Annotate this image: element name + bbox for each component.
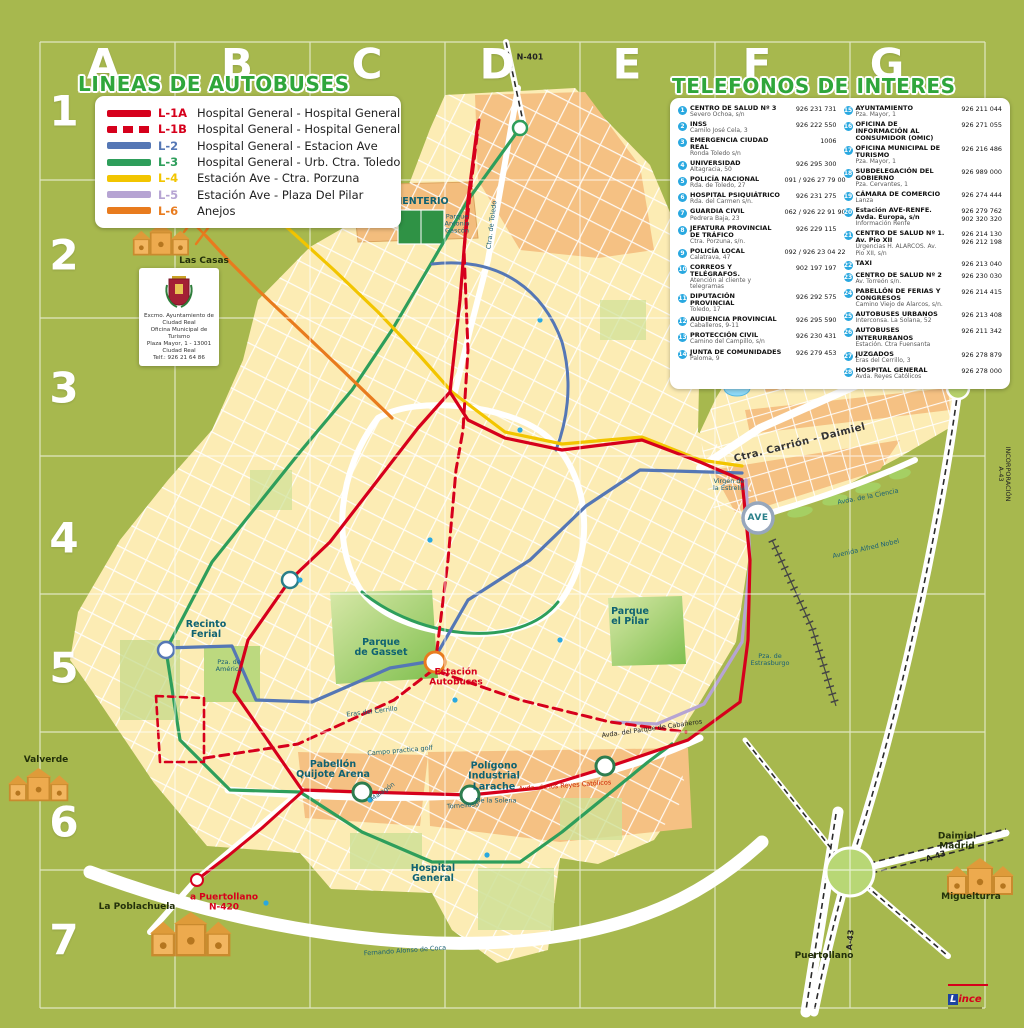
entry-name: EMERGENCIA CIUDAD REAL	[690, 137, 782, 151]
entry-address: Altagracia, 50	[690, 167, 782, 173]
entry-phone: 926 229 115	[785, 225, 837, 233]
entry-phone: 926 274 444	[950, 191, 1002, 199]
legend-title: LINEAS DE AUTOBUSES	[78, 72, 350, 96]
entry-phone: 926 211 342	[950, 327, 1002, 335]
entry-phones: 926 295 590	[785, 316, 837, 324]
directory-entry-23: 23CENTRO DE SALUD Nº 2Av. Torreón s/n.92…	[844, 272, 1003, 285]
entry-phone: 926 222 550	[785, 121, 837, 129]
directory-entry-11: 11DIPUTACIÓN PROVINCIALToledo, 17926 292…	[678, 293, 837, 314]
legend-line-L-4: L-4Estación Ave - Ctra. Porzuna	[107, 170, 391, 186]
entry-number-badge: 5	[678, 177, 687, 186]
entry-phone: 926 278 000	[950, 367, 1002, 375]
entry-text: AUTOBUSES URBANOSInterconsa. La Solana, …	[856, 311, 948, 324]
entry-number-badge: 23	[844, 273, 853, 282]
infobox-line: Plaza Mayor, 1 - 13001 Ciudad Real	[142, 341, 216, 355]
entry-name: CORREOS Y TELÉGRAFOS.	[690, 264, 782, 278]
entry-name: PABELLÓN DE FERIAS Y CONGRESOS	[856, 288, 948, 302]
entry-phones: 926 229 115	[785, 225, 837, 233]
entry-phones: 926 214 130926 212 198	[950, 230, 1002, 246]
entry-number-badge: 25	[844, 312, 853, 321]
entry-address: Severo Ochoa, s/n	[690, 112, 782, 118]
entry-number-badge: 9	[678, 249, 687, 258]
legend-line-L-1B: L-1BHospital General - Hospital General	[107, 121, 391, 137]
line-id: L-2	[158, 139, 190, 153]
entry-text: SUBDELEGACIÓN DEL GOBIERNOPza. Cervantes…	[856, 168, 948, 189]
entry-number-badge: 4	[678, 161, 687, 170]
roundabout-n	[513, 121, 527, 135]
entry-phone: 926 216 486	[950, 145, 1002, 153]
line-id: L-1B	[158, 122, 190, 136]
grid-letter-C: C	[352, 40, 383, 89]
entry-number-badge: 6	[678, 193, 687, 202]
entry-phones: 1006	[785, 137, 837, 145]
line-label: Hospital General - Hospital General	[197, 122, 400, 136]
entry-phones: 926 211 342	[950, 327, 1002, 335]
entry-text: CENTRO DE SALUD Nº 1. Av. Pio XIIUrgenci…	[856, 230, 948, 257]
entry-phone: 926 231 731	[785, 105, 837, 113]
entry-phones: 926 278 879	[950, 351, 1002, 359]
entry-number-badge: 10	[678, 265, 687, 274]
entry-phone: 926 213 040	[950, 260, 1002, 268]
entry-text: POLICÍA LOCALCalatrava, 47	[690, 248, 782, 261]
entry-name: OFICINA DE INFORMACIÓN AL CONSUMIDOR (OM…	[856, 121, 948, 142]
entry-text: CÁMARA DE COMERCIOLanza	[856, 191, 948, 204]
entry-address: Interconsa. La Solana, 52	[856, 318, 948, 324]
entry-text: INSSCamilo José Cela, 3	[690, 121, 782, 134]
directory-entry-13: 13PROTECCIÓN CIVILCamino del Campillo, s…	[678, 332, 837, 345]
entry-text: AUDIENCIA PROVINCIALCaballeros, 9-11	[690, 316, 782, 329]
tourism-office-infobox: Excmo. Ayuntamiento de Ciudad Real Ofici…	[139, 268, 219, 366]
entry-phone: 926 292 575	[785, 293, 837, 301]
line-swatch-L-2	[107, 142, 151, 149]
entry-phones: 926 295 300	[785, 160, 837, 168]
entry-text: POLICÍA NACIONALRda. de Toledo, 27	[690, 176, 782, 189]
infobox-line: Telf.: 926 21 64 86	[142, 355, 216, 362]
entry-name: TAXI	[856, 260, 948, 267]
grid-number-2: 2	[49, 231, 78, 280]
grid-number-4: 4	[49, 514, 78, 563]
line-label: Anejos	[197, 204, 235, 218]
entry-number-badge: 22	[844, 261, 853, 270]
grid-number-6: 6	[49, 798, 78, 847]
line-id: L-6	[158, 204, 190, 218]
directory-entry-14: 14JUNTA DE COMUNIDADESPaloma, 9926 279 4…	[678, 349, 837, 362]
entry-phone: 926 211 044	[950, 105, 1002, 113]
grid-letter-E: E	[613, 40, 642, 89]
line-label: Hospital General - Hospital General	[197, 106, 400, 120]
entry-number-badge: 28	[844, 368, 853, 377]
logo-subrule	[948, 1007, 982, 1009]
entry-phone: 926 214 130	[950, 230, 1002, 238]
entry-number-badge: 21	[844, 231, 853, 240]
legend-line-L-1A: L-1AHospital General - Hospital General	[107, 105, 391, 121]
directory-entry-3: 3EMERGENCIA CIUDAD REALRonda Toledo s/n1…	[678, 137, 837, 158]
directory-entry-28: 28HOSPITAL GENERALAvda. Reyes Católicos9…	[844, 367, 1003, 380]
entry-address: Rda. de Toledo, 27	[690, 183, 782, 189]
entry-number-badge: 3	[678, 138, 687, 147]
entry-phones: 926 278 000	[950, 367, 1002, 375]
directory-entry-25: 25AUTOBUSES URBANOSInterconsa. La Solana…	[844, 311, 1003, 324]
directory-entry-12: 12AUDIENCIA PROVINCIALCaballeros, 9-1192…	[678, 316, 837, 329]
directory-entry-19: 19CÁMARA DE COMERCIOLanza926 274 444	[844, 191, 1003, 204]
entry-number-badge: 20	[844, 208, 853, 217]
entry-address: Atención al cliente y telegramas	[690, 278, 782, 291]
entry-phone: 926 213 408	[950, 311, 1002, 319]
city-crest	[164, 273, 194, 311]
entry-phones: 926 279 453	[785, 349, 837, 357]
entry-address: Eras del Cerrillo, 3	[856, 358, 948, 364]
green-patch	[560, 798, 622, 840]
entry-number-badge: 27	[844, 352, 853, 361]
entry-number-badge: 16	[844, 122, 853, 131]
logo-letter: L	[948, 994, 958, 1005]
entry-address: Pedrera Baja, 23	[690, 216, 782, 222]
entry-text: EMERGENCIA CIUDAD REALRonda Toledo s/n	[690, 137, 782, 158]
entry-phone-2: 926 212 198	[950, 238, 1002, 246]
roundabout-w	[282, 572, 298, 588]
entry-text: TAXI	[856, 260, 948, 267]
entry-address: Caballeros, 9-11	[690, 323, 782, 329]
entry-text: UNIVERSIDADAltagracia, 50	[690, 160, 782, 173]
entry-number-badge: 19	[844, 192, 853, 201]
grid-letter-D: D	[480, 40, 515, 89]
line-label: Hospital General - Estacion Ave	[197, 139, 378, 153]
entry-address: Pza. Mayor, 1	[856, 112, 948, 118]
entry-address: Estación. Ctra Fuensanta	[856, 342, 948, 348]
directory-entry-9: 9POLICÍA LOCALCalatrava, 47092 / 926 23 …	[678, 248, 837, 261]
entry-phones: 926 230 030	[950, 272, 1002, 280]
line-swatch-L-1B	[107, 126, 151, 133]
legend-line-L-6: L-6Anejos	[107, 203, 391, 219]
entry-text: JUZGADOSEras del Cerrillo, 3	[856, 351, 948, 364]
entry-address: Avda. Reyes Católicos	[856, 374, 948, 380]
entry-address: Camino Viejo de Alarcos, s/n.	[856, 302, 948, 308]
entry-text: CORREOS Y TELÉGRAFOS.Atención al cliente…	[690, 264, 782, 291]
entry-name: JEFATURA PROVINCIAL DE TRÁFICO	[690, 225, 782, 239]
line-swatch-L-6	[107, 207, 151, 214]
entry-address: Pza. Mayor, 1	[856, 159, 948, 165]
entry-number-badge: 1	[678, 106, 687, 115]
entry-phones: 926 279 762902 320 320	[950, 207, 1002, 223]
line-label: Estación Ave - Ctra. Porzuna	[197, 171, 359, 185]
entry-phones: 926 274 444	[950, 191, 1002, 199]
entry-phone-2: 902 320 320	[950, 215, 1002, 223]
entry-phones: 902 197 197	[785, 264, 837, 272]
entry-name: DIPUTACIÓN PROVINCIAL	[690, 293, 782, 307]
entry-text: OFICINA DE INFORMACIÓN AL CONSUMIDOR (OM…	[856, 121, 948, 142]
directory-entry-4: 4UNIVERSIDADAltagracia, 50926 295 300	[678, 160, 837, 173]
entry-text: Estación AVE-RENFE. Avda. Europa, s/nInf…	[856, 207, 948, 228]
entry-name: AUTOBUSES INTERURBANOS	[856, 327, 948, 341]
legend-line-L-3: L-3Hospital General - Urb. Ctra. Toledo	[107, 154, 391, 170]
entry-phones: 092 / 926 23 04 22	[785, 248, 837, 256]
entry-text: CENTRO DE SALUD Nº 3Severo Ochoa, s/n	[690, 105, 782, 118]
lince-logo: Lince	[948, 984, 1014, 1009]
entry-text: JEFATURA PROVINCIAL DE TRÁFICOCtra. Porz…	[690, 225, 782, 246]
entry-phone: 926 230 030	[950, 272, 1002, 280]
entry-number-badge: 12	[678, 317, 687, 326]
entry-number-badge: 26	[844, 328, 853, 337]
directory-entry-6: 6HOSPITAL PSIQUIÁTRICORda. del Carmen s/…	[678, 192, 837, 205]
entry-address: Camino del Campillo, s/n	[690, 339, 782, 345]
entry-name: OFICINA MUNICIPAL DE TURISMO	[856, 145, 948, 159]
entry-name: Estación AVE-RENFE. Avda. Europa, s/n	[856, 207, 948, 221]
line-swatch-L-4	[107, 175, 151, 182]
directory-entry-18: 18SUBDELEGACIÓN DEL GOBIERNOPza. Cervant…	[844, 168, 1003, 189]
logo-rule	[948, 984, 988, 986]
entry-text: PROTECCIÓN CIVILCamino del Campillo, s/n	[690, 332, 782, 345]
entry-address: Calatrava, 47	[690, 255, 782, 261]
roundabout-bus-station	[425, 652, 445, 672]
line-label: Estación Ave - Plaza Del Pilar	[197, 188, 363, 202]
green-patch	[478, 868, 554, 930]
grid-number-3: 3	[49, 364, 78, 413]
entry-phones: 926 989 000	[950, 168, 1002, 176]
grid-number-7: 7	[49, 916, 78, 965]
entry-number-badge: 24	[844, 289, 853, 298]
entry-text: HOSPITAL PSIQUIÁTRICORda. del Carmen s/n…	[690, 192, 782, 205]
entry-phone: 926 278 879	[950, 351, 1002, 359]
entry-number-badge: 13	[678, 333, 687, 342]
entry-phones: 926 213 408	[950, 311, 1002, 319]
entry-address: Información Renfe	[856, 221, 948, 227]
logo-rest: ince	[958, 994, 981, 1005]
entry-number-badge: 18	[844, 169, 853, 178]
entry-text: GUARDIA CIVILPedrera Baja, 23	[690, 208, 782, 221]
entry-address: Lanza	[856, 198, 948, 204]
line-swatch-L-5	[107, 191, 151, 198]
entry-number-badge: 8	[678, 226, 687, 235]
entry-address: Paloma, 9	[690, 356, 782, 362]
entry-address: Ronda Toledo s/n	[690, 151, 782, 157]
entry-phone: 926 230 431	[785, 332, 837, 340]
entry-phone: 091 / 926 27 79 00	[785, 176, 837, 184]
directory-entry-2: 2INSSCamilo José Cela, 3926 222 550	[678, 121, 837, 134]
legend-line-L-2: L-2Hospital General - Estacion Ave	[107, 138, 391, 154]
entry-phone: 092 / 926 23 04 22	[785, 248, 837, 256]
roundabout-s2	[596, 757, 614, 775]
entry-phone: 926 279 453	[785, 349, 837, 357]
entry-phone: 926 279 762	[950, 207, 1002, 215]
entry-text: HOSPITAL GENERALAvda. Reyes Católicos	[856, 367, 948, 380]
directory-entry-20: 20Estación AVE-RENFE. Avda. Europa, s/nI…	[844, 207, 1003, 228]
line-label: Hospital General - Urb. Ctra. Toledo	[197, 155, 400, 169]
grid-number-5: 5	[49, 644, 78, 693]
entry-text: PABELLÓN DE FERIAS Y CONGRESOSCamino Vie…	[856, 288, 948, 309]
entry-address: Toledo, 17	[690, 307, 782, 313]
entry-address: Ctra. Porzuna, s/n.	[690, 239, 782, 245]
line-id: L-3	[158, 155, 190, 169]
entry-address: Av. Torreón s/n.	[856, 279, 948, 285]
entry-phone: 062 / 926 22 91 90	[785, 208, 837, 216]
entry-phone: 902 197 197	[785, 264, 837, 272]
entry-phones: 062 / 926 22 91 90	[785, 208, 837, 216]
entry-address: Urgencias H. ALARCOS. Av. Pio XII, s/n	[856, 244, 948, 257]
entry-phones: 926 214 415	[950, 288, 1002, 296]
entry-phone: 926 989 000	[950, 168, 1002, 176]
line-swatch-L-1A	[107, 110, 151, 117]
entry-address: Pza. Cervantes, 1	[856, 182, 948, 188]
entry-phones: 091 / 926 27 79 00	[785, 176, 837, 184]
entry-text: DIPUTACIÓN PROVINCIALToledo, 17	[690, 293, 782, 314]
entry-number-badge: 14	[678, 350, 687, 359]
entry-phone: 926 295 300	[785, 160, 837, 168]
entry-name: SUBDELEGACIÓN DEL GOBIERNO	[856, 168, 948, 182]
entry-phones: 926 211 044	[950, 105, 1002, 113]
entry-phones: 926 216 486	[950, 145, 1002, 153]
entry-text: OFICINA MUNICIPAL DE TURISMOPza. Mayor, …	[856, 145, 948, 166]
directory-entry-27: 27JUZGADOSEras del Cerrillo, 3926 278 87…	[844, 351, 1003, 364]
grid-number-1: 1	[49, 87, 78, 136]
entry-number-badge: 17	[844, 146, 853, 155]
line-id: L-1A	[158, 106, 190, 120]
line-id: L-5	[158, 188, 190, 202]
infobox-line: Excmo. Ayuntamiento de Ciudad Real	[142, 313, 216, 327]
entry-phones: 926 271 055	[950, 121, 1002, 129]
phone-directory: 1CENTRO DE SALUD Nº 3Severo Ochoa, s/n92…	[670, 98, 1010, 389]
entry-number-badge: 2	[678, 122, 687, 131]
entry-phones: 926 213 040	[950, 260, 1002, 268]
directory-entry-10: 10CORREOS Y TELÉGRAFOS.Atención al clien…	[678, 264, 837, 291]
entry-number-badge: 7	[678, 209, 687, 218]
legend-line-L-5: L-5Estación Ave - Plaza Del Pilar	[107, 186, 391, 202]
directory-entry-22: 22TAXI926 213 040	[844, 260, 1003, 270]
directory-entry-17: 17OFICINA MUNICIPAL DE TURISMOPza. Mayor…	[844, 145, 1003, 166]
roundabout-s1	[461, 786, 479, 804]
parque-pilar	[608, 596, 686, 666]
line-swatch-L-3	[107, 159, 151, 166]
entry-phone: 926 295 590	[785, 316, 837, 324]
directory-entry-8: 8JEFATURA PROVINCIAL DE TRÁFICOCtra. Por…	[678, 225, 837, 246]
entry-phone: 926 231 275	[785, 192, 837, 200]
entry-text: CENTRO DE SALUD Nº 2Av. Torreón s/n.	[856, 272, 948, 285]
entry-phones: 926 231 731	[785, 105, 837, 113]
entry-phone: 1006	[785, 137, 837, 145]
roundabout-n420	[191, 874, 203, 886]
directory-entry-15: 15AYUNTAMIENTOPza. Mayor, 1926 211 044	[844, 105, 1003, 118]
entry-phones: 926 222 550	[785, 121, 837, 129]
directory-entry-1: 1CENTRO DE SALUD Nº 3Severo Ochoa, s/n92…	[678, 105, 837, 118]
bus-lines-legend: L-1AHospital General - Hospital GeneralL…	[95, 96, 401, 228]
infobox-line: Oficina Municipal de Turismo	[142, 327, 216, 341]
ave-station-badge	[743, 503, 773, 533]
entry-number-badge: 15	[844, 106, 853, 115]
green-patch	[600, 300, 646, 340]
directory-entry-21: 21CENTRO DE SALUD Nº 1. Av. Pio XIIUrgen…	[844, 230, 1003, 257]
directory-entry-7: 7GUARDIA CIVILPedrera Baja, 23062 / 926 …	[678, 208, 837, 221]
entry-text: JUNTA DE COMUNIDADESPaloma, 9	[690, 349, 782, 362]
city-bus-map-page: { "grid": { "columns": ["A","B","C","D",…	[0, 0, 1024, 1024]
roundabout-ferial	[158, 642, 174, 658]
entry-name: CENTRO DE SALUD Nº 1. Av. Pio XII	[856, 230, 948, 244]
entry-phones: 926 231 275	[785, 192, 837, 200]
directory-column-left: 1CENTRO DE SALUD Nº 3Severo Ochoa, s/n92…	[678, 105, 837, 383]
entry-address: Rda. del Carmen s/n.	[690, 199, 782, 205]
directory-entry-16: 16OFICINA DE INFORMACIÓN AL CONSUMIDOR (…	[844, 121, 1003, 142]
entry-phone: 926 271 055	[950, 121, 1002, 129]
entry-phones: 926 292 575	[785, 293, 837, 301]
directory-title: TELEFONOS DE INTERES	[672, 74, 956, 98]
directory-entry-26: 26AUTOBUSES INTERURBANOSEstación. Ctra F…	[844, 327, 1003, 348]
directory-entry-5: 5POLICÍA NACIONALRda. de Toledo, 27091 /…	[678, 176, 837, 189]
entry-phone: 926 214 415	[950, 288, 1002, 296]
entry-text: AYUNTAMIENTOPza. Mayor, 1	[856, 105, 948, 118]
entry-address: Camilo José Cela, 3	[690, 128, 782, 134]
directory-entry-24: 24PABELLÓN DE FERIAS Y CONGRESOSCamino V…	[844, 288, 1003, 309]
directory-column-right: 15AYUNTAMIENTOPza. Mayor, 1926 211 04416…	[844, 105, 1003, 383]
line-id: L-4	[158, 171, 190, 185]
entry-number-badge: 11	[678, 294, 687, 303]
entry-text: AUTOBUSES INTERURBANOSEstación. Ctra Fue…	[856, 327, 948, 348]
green-patch	[350, 833, 422, 869]
entry-phones: 926 230 431	[785, 332, 837, 340]
